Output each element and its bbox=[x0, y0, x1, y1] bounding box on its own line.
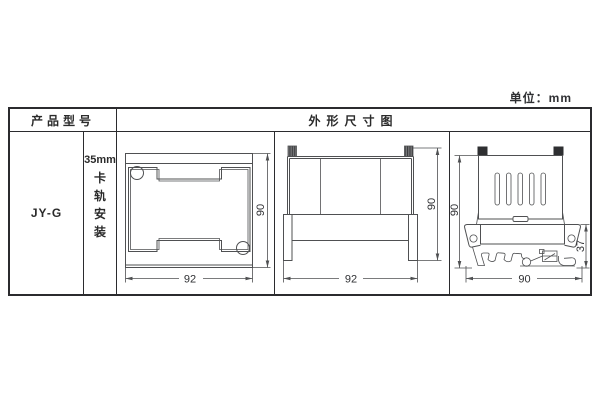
clip-height-dimension-value: 37 bbox=[575, 240, 587, 252]
vent-slots bbox=[495, 173, 546, 205]
relay-body bbox=[477, 156, 565, 225]
mounting-size-label: 35mm bbox=[84, 151, 116, 169]
mounting-char: 卡 bbox=[94, 169, 106, 187]
din-rail-clip bbox=[473, 247, 576, 266]
terminal-screw-icon bbox=[405, 146, 414, 157]
mounting-type-cell: 35mm 卡 轨 安 装 bbox=[84, 132, 117, 294]
screw-hole-icon bbox=[237, 242, 250, 255]
width-dimension-value: 92 bbox=[345, 273, 357, 285]
mounting-char: 装 bbox=[94, 223, 106, 241]
mounting-char: 轨 bbox=[94, 187, 106, 205]
height-dimension-value: 90 bbox=[426, 198, 438, 210]
screw-hole-icon bbox=[131, 167, 144, 180]
rail-view-cell: 90 37 90 bbox=[450, 132, 590, 294]
socket-base bbox=[465, 225, 581, 248]
side-view-cell: 90 92 bbox=[275, 132, 450, 294]
outline-drawing-header-label: 外形尺寸图 bbox=[308, 112, 398, 129]
front-view-cell: 90 92 bbox=[117, 132, 275, 294]
latch-tab bbox=[513, 217, 528, 222]
width-dimension: 92 bbox=[126, 268, 253, 285]
socket-base bbox=[284, 215, 418, 261]
front-view-drawing: 90 92 bbox=[117, 132, 275, 294]
product-model-value: JY-G bbox=[31, 206, 62, 220]
terminal-screw-icon bbox=[554, 147, 563, 155]
clip-height-dimension: 37 bbox=[575, 225, 590, 269]
terminal-screw-icon bbox=[478, 147, 487, 155]
mounting-char: 安 bbox=[94, 205, 106, 223]
side-view-drawing: 90 92 bbox=[275, 132, 450, 294]
unit-label: 单位：mm bbox=[510, 89, 572, 106]
terminal-screw-icon bbox=[288, 146, 297, 157]
dimension-table: 产品型号 外形尺寸图 JY-G 35mm 卡 轨 安 装 bbox=[8, 107, 592, 296]
product-model-header-label: 产品型号 bbox=[31, 112, 95, 129]
height-dimension: 90 bbox=[253, 154, 271, 268]
enclosure-outline bbox=[126, 154, 253, 268]
product-model-header: 产品型号 bbox=[10, 109, 117, 132]
width-dimension: 92 bbox=[284, 261, 418, 285]
product-model-cell: JY-G bbox=[10, 132, 84, 294]
width-dimension-value: 90 bbox=[518, 273, 530, 285]
rail-view-drawing: 90 37 90 bbox=[450, 132, 590, 294]
width-dimension: 90 bbox=[466, 266, 582, 285]
relay-body bbox=[288, 157, 414, 215]
outline-drawing-header: 外形尺寸图 bbox=[117, 109, 590, 132]
datasheet-page: 单位：mm 产品型号 外形尺寸图 JY-G 35mm 卡 轨 安 装 bbox=[0, 0, 600, 400]
width-dimension-value: 92 bbox=[184, 273, 196, 285]
height-dimension-value: 90 bbox=[450, 204, 461, 216]
height-dimension-value: 90 bbox=[255, 204, 267, 216]
